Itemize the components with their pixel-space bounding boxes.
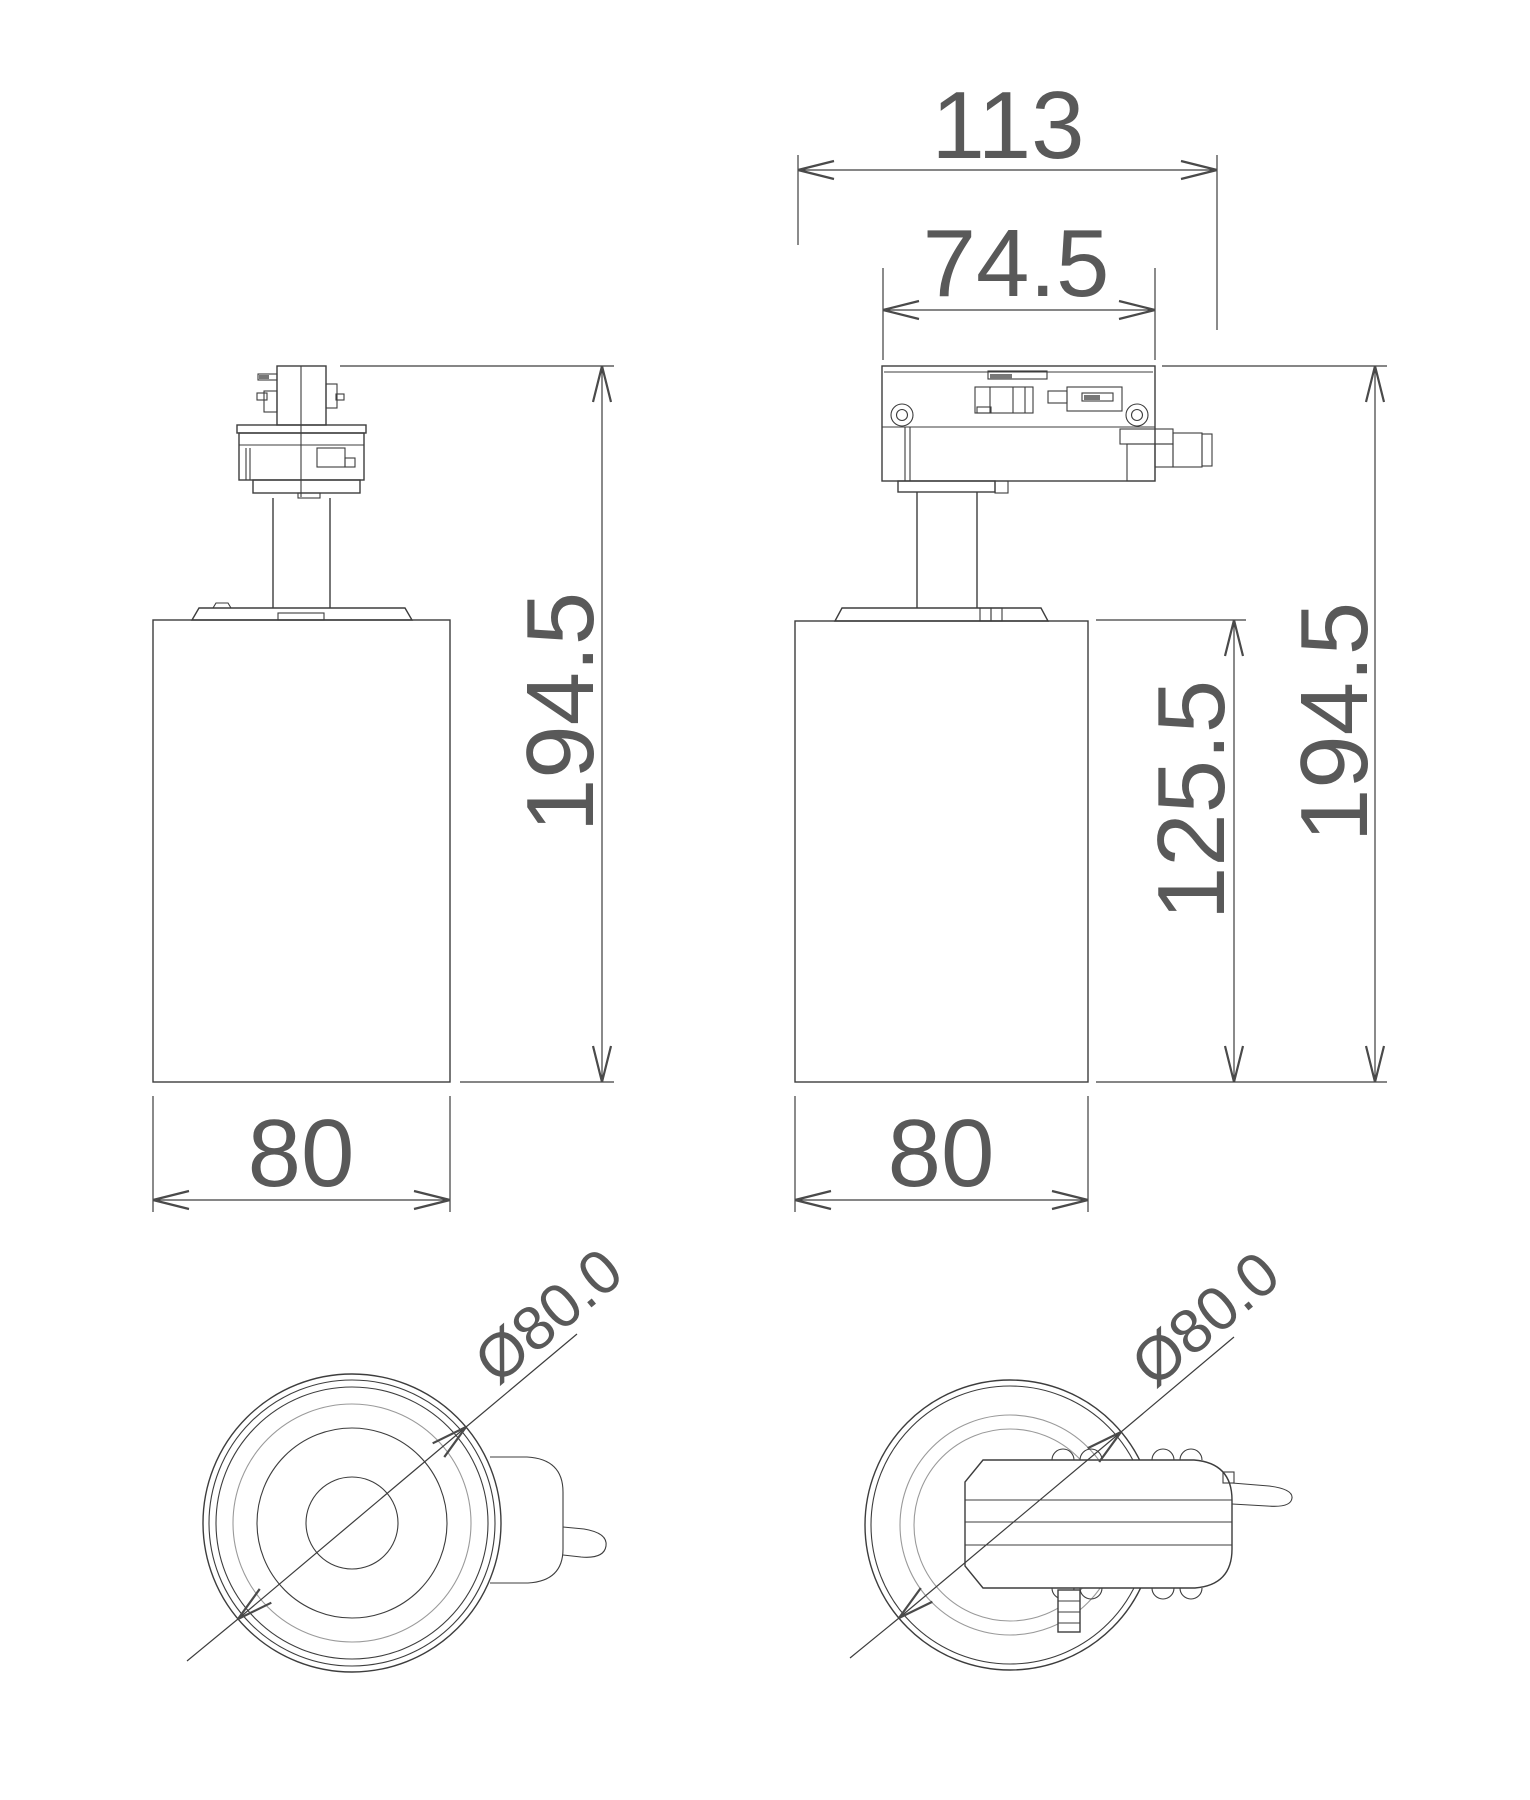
side-view: 194.5 80 [153, 366, 614, 1212]
dimension-drawing-page: 194.5 80 [0, 0, 1530, 1800]
track-adapter-top-view [965, 1449, 1292, 1632]
lever-tip-bottom-view [563, 1527, 606, 1557]
dim-bottom-diameter-label: Ø80.0 [462, 1236, 636, 1397]
dim-side-body-width-label: 80 [248, 1100, 355, 1207]
dim-front-adapter-width: 74.5 [883, 210, 1155, 360]
track-adapter-front [882, 366, 1212, 608]
top-view-adapter: Ø80.0 [850, 1239, 1293, 1670]
locking-lever-front [1120, 429, 1212, 481]
dim-front-overall-height-label: 194.5 [1281, 602, 1388, 842]
dim-front-body-width-label: 80 [888, 1100, 995, 1207]
dim-side-overall-height-label: 194.5 [507, 592, 614, 832]
dim-front-adapter-width-label: 74.5 [923, 210, 1110, 317]
lamp-body-front [795, 608, 1088, 1082]
bottom-view-lens: Ø80.0 [187, 1236, 636, 1672]
lamp-body-side [153, 603, 450, 1082]
front-view: 113 74.5 125.5 194.5 80 [795, 72, 1388, 1212]
technical-drawing: 194.5 80 [0, 0, 1530, 1800]
dim-side-overall-height: 194.5 [340, 366, 614, 1082]
dim-top-diameter-label: Ø80.0 [1119, 1239, 1293, 1400]
dim-front-body-height: 125.5 [1096, 620, 1246, 1082]
dim-front-body-width: 80 [795, 1096, 1088, 1212]
dim-side-body-width: 80 [153, 1096, 450, 1212]
adapter-bottom-clip [1058, 1590, 1080, 1632]
dim-front-overall-width-label: 113 [931, 72, 1084, 179]
dim-front-body-height-label: 125.5 [1138, 680, 1245, 920]
track-adapter-side [237, 366, 366, 608]
